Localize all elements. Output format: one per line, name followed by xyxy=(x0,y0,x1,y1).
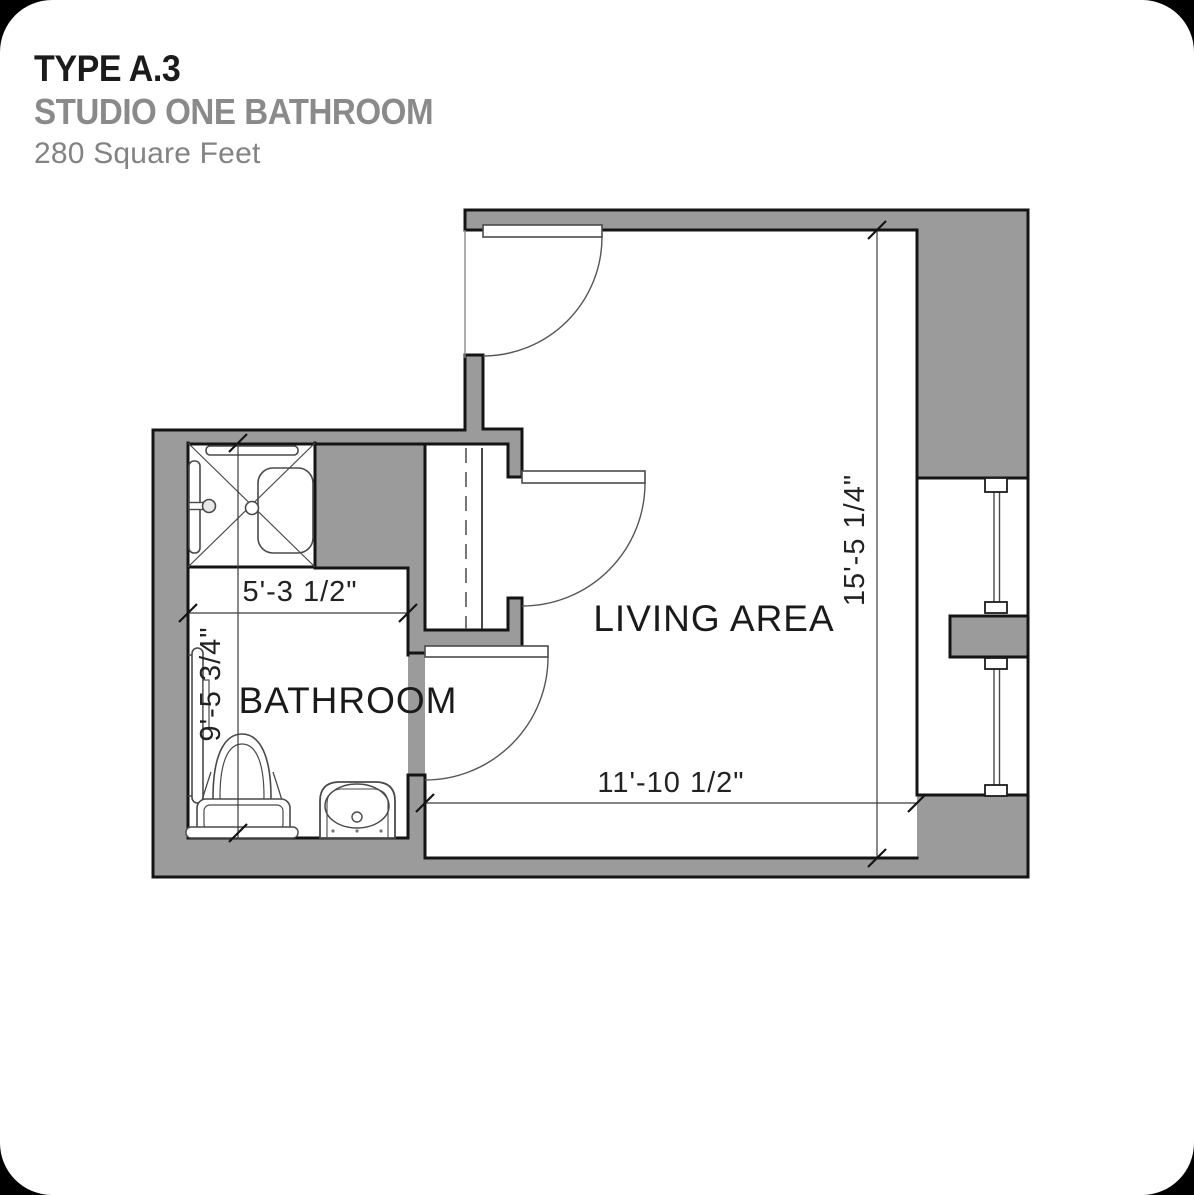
window-mullion-upper-mid xyxy=(985,602,1007,613)
closet-door-leaf xyxy=(522,471,645,483)
window-mullion-lower-mid xyxy=(985,658,1007,669)
closet-door xyxy=(522,471,645,606)
living-area-label: LIVING AREA xyxy=(593,598,834,639)
sink-faucet-handle-right xyxy=(379,829,382,832)
closet-left-wall xyxy=(408,445,425,655)
sink-faucet-spout xyxy=(355,829,358,832)
window-mullion-bottom xyxy=(985,785,1007,796)
plumbing-chase xyxy=(315,443,408,568)
sink-faucet-handle-left xyxy=(331,829,334,832)
right-lower-wall-block xyxy=(917,795,1028,877)
entry-door xyxy=(483,225,602,356)
closet-door-strike-jamb xyxy=(508,598,522,653)
entry-door-leaf xyxy=(483,225,602,237)
shower-head-icon xyxy=(203,500,216,513)
entry-door-swing-arc xyxy=(483,237,602,356)
sink xyxy=(320,782,395,838)
entry-jamb-wall xyxy=(465,355,483,430)
bathroom-door-leaf xyxy=(425,646,548,657)
closet-door-swing-arc xyxy=(522,483,645,606)
floor-plan-sheet: TYPE A.3 STUDIO ONE BATHROOM 280 Square … xyxy=(0,0,1194,1195)
right-upper-wall-column xyxy=(917,230,1028,478)
shower-drain xyxy=(246,502,259,515)
dim-text-living-width: 11'-10 1/2" xyxy=(597,767,744,799)
dim-text-living-depth: 15'-5 1/4" xyxy=(839,474,871,606)
window-center-pier xyxy=(950,616,1028,657)
bath-door-jamb-wall xyxy=(408,775,425,858)
bottom-wall xyxy=(408,858,917,877)
window-mullion-top xyxy=(985,478,1007,492)
dim-text-bathroom-depth: 9'-5 3/4" xyxy=(195,626,227,741)
closet-right-wall xyxy=(508,429,522,477)
bathroom-label: BATHROOM xyxy=(238,680,457,721)
floor-plan-drawing: 5'-3 1/2" 9'-5 3/4" 15'-5 1/4" 11'-10 1/… xyxy=(0,0,1194,1195)
dim-text-bathroom-width: 5'-3 1/2" xyxy=(242,576,357,608)
shower-grab-bar-top xyxy=(206,446,298,455)
